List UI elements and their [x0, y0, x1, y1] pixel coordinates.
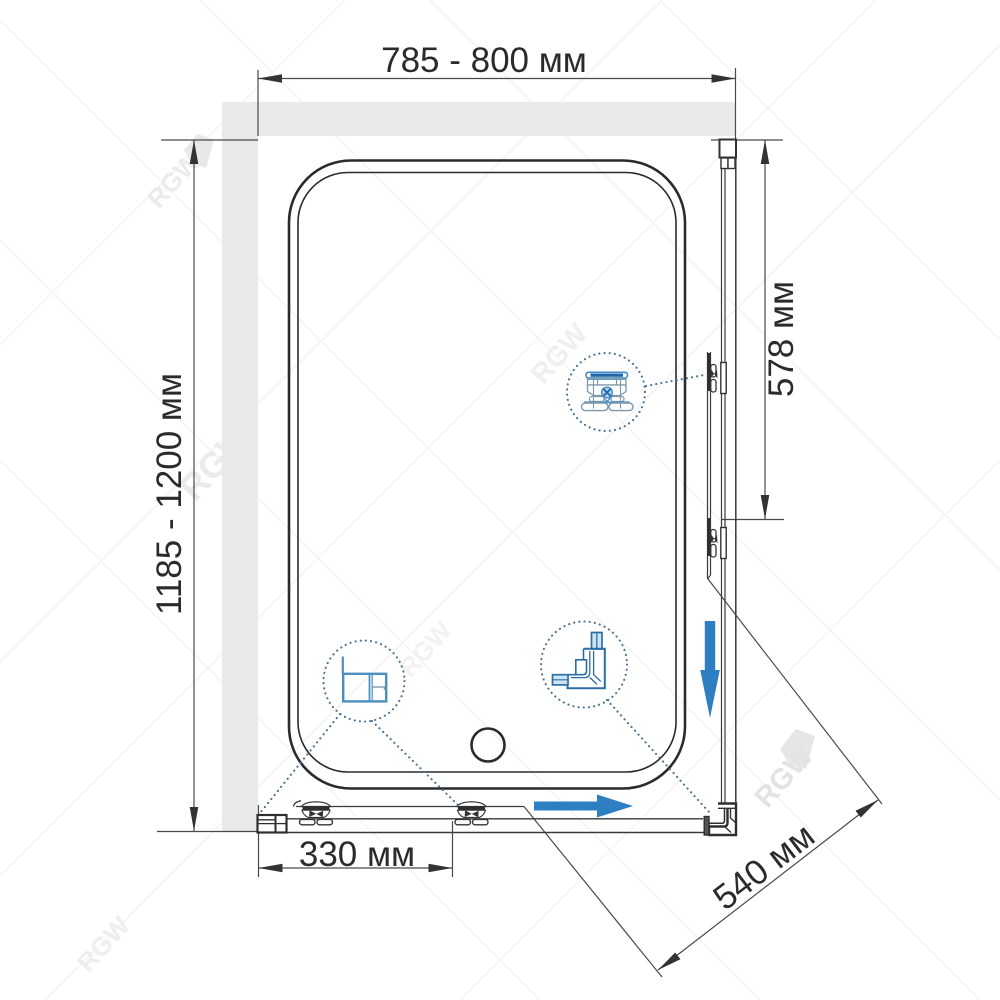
svg-text:578 мм: 578 мм: [762, 281, 801, 397]
svg-text:1185 - 1200 мм: 1185 - 1200 мм: [150, 373, 189, 615]
svg-text:330 мм: 330 мм: [299, 835, 415, 874]
svg-text:785 - 800 мм: 785 - 800 мм: [381, 41, 587, 80]
